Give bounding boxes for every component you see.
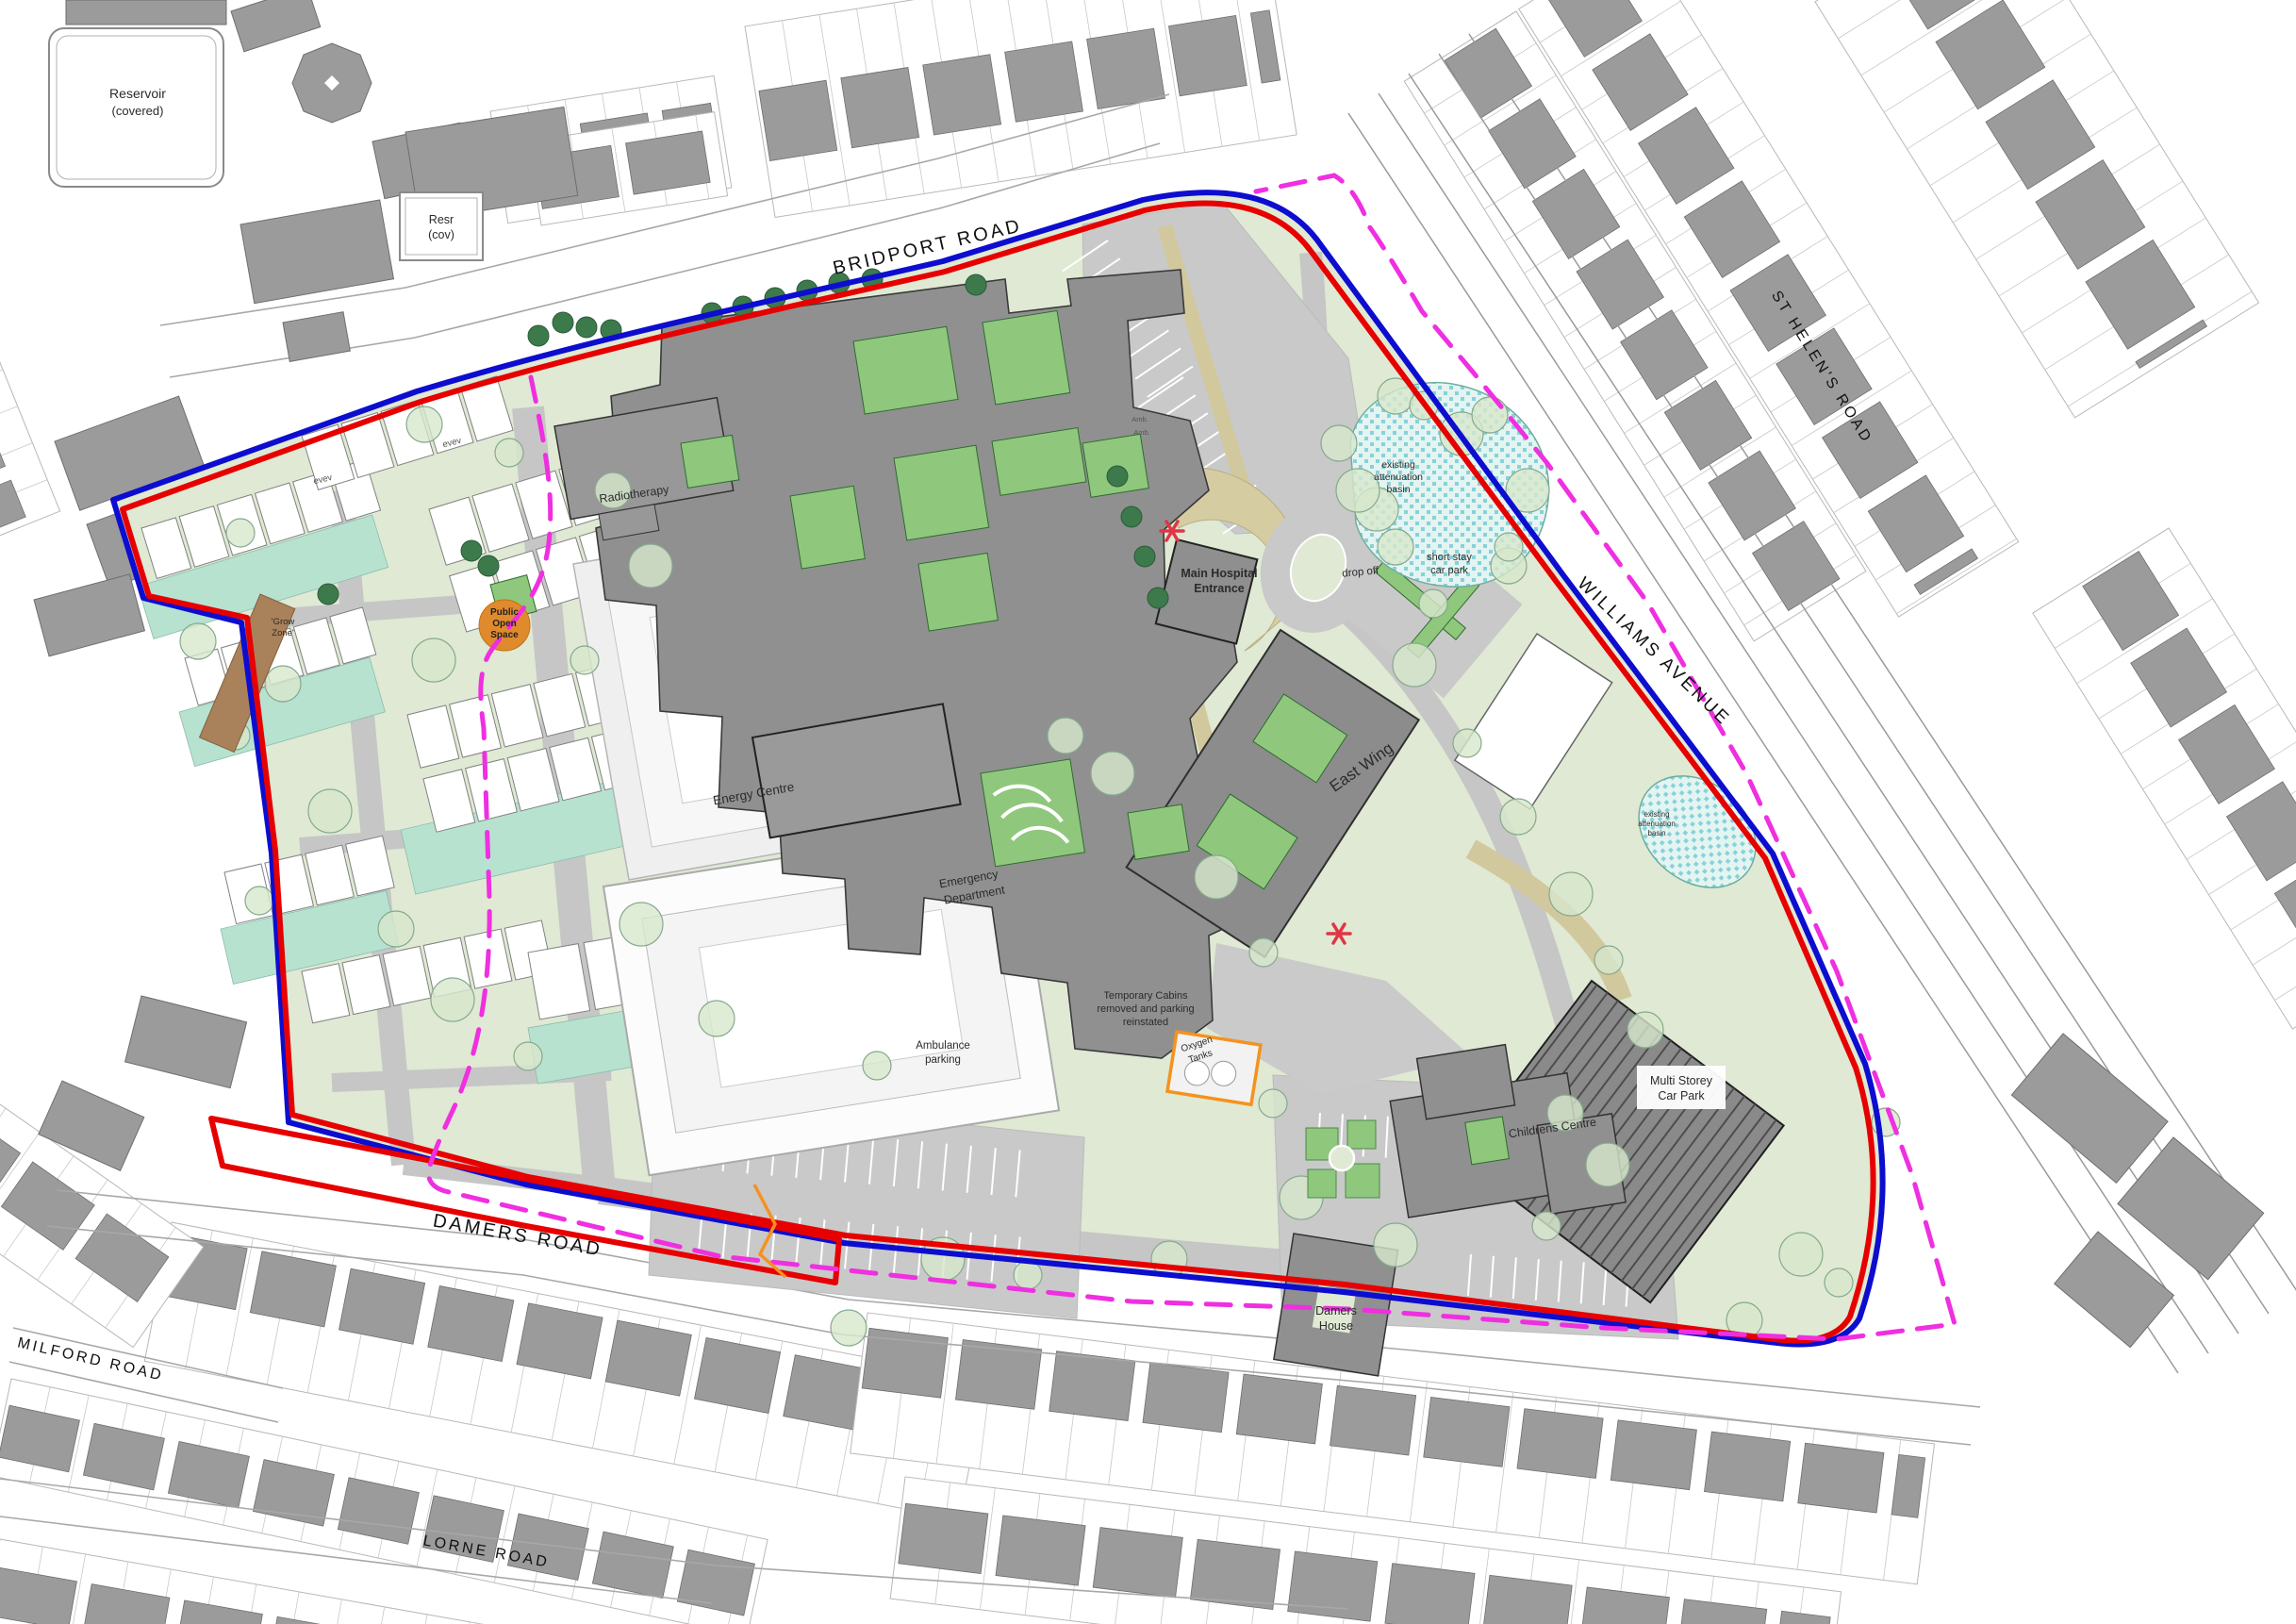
- tree-icon: [1321, 425, 1357, 461]
- mscp-label-box: [1637, 1066, 1726, 1109]
- tree-icon: [1091, 752, 1134, 795]
- label-basin-north-2: attenuation: [1374, 472, 1423, 483]
- tree-icon: [1495, 533, 1523, 561]
- tree-icon: [1586, 1143, 1629, 1186]
- label-reservoir-2: (covered): [112, 104, 164, 118]
- tree-icon: [1107, 466, 1128, 487]
- oxygen-tanks-compound: [1167, 1032, 1261, 1104]
- label-basin-north-3: basin: [1386, 484, 1410, 495]
- tree-icon: [495, 439, 523, 467]
- label-ambulance-2: parking: [925, 1054, 961, 1066]
- label-damers-house-1: Damers: [1315, 1304, 1357, 1317]
- label-short-stay-2: car park: [1430, 565, 1468, 576]
- tree-icon: [1627, 1012, 1663, 1048]
- tree-icon: [431, 978, 474, 1021]
- tree-icon: [1500, 799, 1536, 835]
- tree-icon: [226, 519, 255, 547]
- tree-icon: [1014, 1261, 1042, 1289]
- resr-covered: [400, 192, 483, 260]
- label-basin-east-1: existing: [1644, 810, 1669, 819]
- tree-icon: [528, 325, 549, 346]
- label-damers-house-2: House: [1319, 1319, 1353, 1333]
- label-main-entrance-2: Entrance: [1194, 582, 1245, 595]
- label-temp-cabins-1: Temporary Cabins: [1103, 990, 1188, 1002]
- label-grow-zone-2: Zone': [272, 628, 294, 638]
- tree-icon: [1374, 1223, 1417, 1267]
- label-main-entrance-1: Main Hospital: [1181, 567, 1257, 580]
- tree-icon: [514, 1042, 542, 1070]
- tree-icon: [245, 887, 273, 915]
- tree-icon: [406, 406, 442, 442]
- label-reservoir-1: Reservoir: [109, 86, 166, 101]
- tree-icon: [461, 540, 482, 561]
- label-mscp-2: Car Park: [1658, 1089, 1705, 1102]
- tree-icon: [1825, 1268, 1853, 1297]
- label-public-open-space-2: Open: [492, 619, 517, 629]
- tree-icon: [1195, 855, 1238, 899]
- courtyard-garden-with-paths: [981, 759, 1084, 867]
- tree-icon: [265, 666, 301, 702]
- tree-icon: [629, 544, 672, 588]
- tree-icon: [1134, 546, 1155, 567]
- tree-icon: [180, 623, 216, 659]
- label-ambulance-1: Ambulance: [916, 1040, 970, 1052]
- tree-icon: [1453, 729, 1481, 757]
- tree-icon: [619, 903, 663, 946]
- tree-icon: [1148, 588, 1168, 608]
- label-basin-east-3: basin: [1647, 829, 1665, 837]
- label-temp-cabins-2: removed and parking: [1097, 1003, 1194, 1015]
- tree-icon: [308, 789, 352, 833]
- tree-icon: [1048, 718, 1083, 754]
- tree-icon: [1549, 872, 1593, 916]
- context-building: [66, 0, 226, 25]
- tree-icon: [576, 317, 597, 338]
- label-resr-2: (cov): [428, 228, 454, 241]
- tree-icon: [570, 646, 599, 674]
- label-grow-zone-1: 'Grow: [272, 617, 295, 627]
- label-public-open-space-3: Space: [490, 630, 519, 640]
- label-mscp-1: Multi Storey: [1650, 1074, 1713, 1087]
- tree-icon: [831, 1310, 867, 1346]
- label-resr-1: Resr: [429, 213, 454, 226]
- tree-icon: [378, 911, 414, 947]
- site-plan-canvas: BRIDPORT ROAD ST HELEN'S ROAD WILLIAMS A…: [0, 0, 2296, 1624]
- tree-icon: [699, 1001, 735, 1036]
- tree-icon: [1378, 529, 1413, 565]
- octagon-building: [292, 43, 372, 123]
- label-amb-1: Amb.: [1131, 415, 1148, 423]
- tree-icon: [553, 312, 573, 333]
- tree-icon: [863, 1052, 891, 1080]
- label-basin-north-1: existing: [1381, 459, 1415, 471]
- label-temp-cabins-3: reinstated: [1123, 1017, 1168, 1028]
- tree-icon: [412, 638, 455, 682]
- tree-icon: [1259, 1089, 1287, 1118]
- tree-icon: [966, 274, 986, 295]
- tree-icon: [318, 584, 339, 605]
- tree-icon: [1121, 506, 1142, 527]
- tree-icon: [1249, 938, 1278, 967]
- label-basin-east-2: attenuation: [1638, 820, 1676, 828]
- tree-icon: [1419, 589, 1447, 618]
- label-amb-2: Amb.: [1133, 428, 1150, 437]
- label-short-stay-1: short stay: [1427, 552, 1472, 563]
- label-public-open-space-1: Public: [490, 607, 519, 618]
- tree-icon: [1779, 1233, 1823, 1276]
- tree-icon: [1472, 397, 1508, 433]
- tree-icon: [478, 555, 499, 576]
- tree-icon: [1532, 1212, 1561, 1240]
- tree-icon: [1594, 946, 1623, 974]
- tree-icon: [1393, 643, 1436, 687]
